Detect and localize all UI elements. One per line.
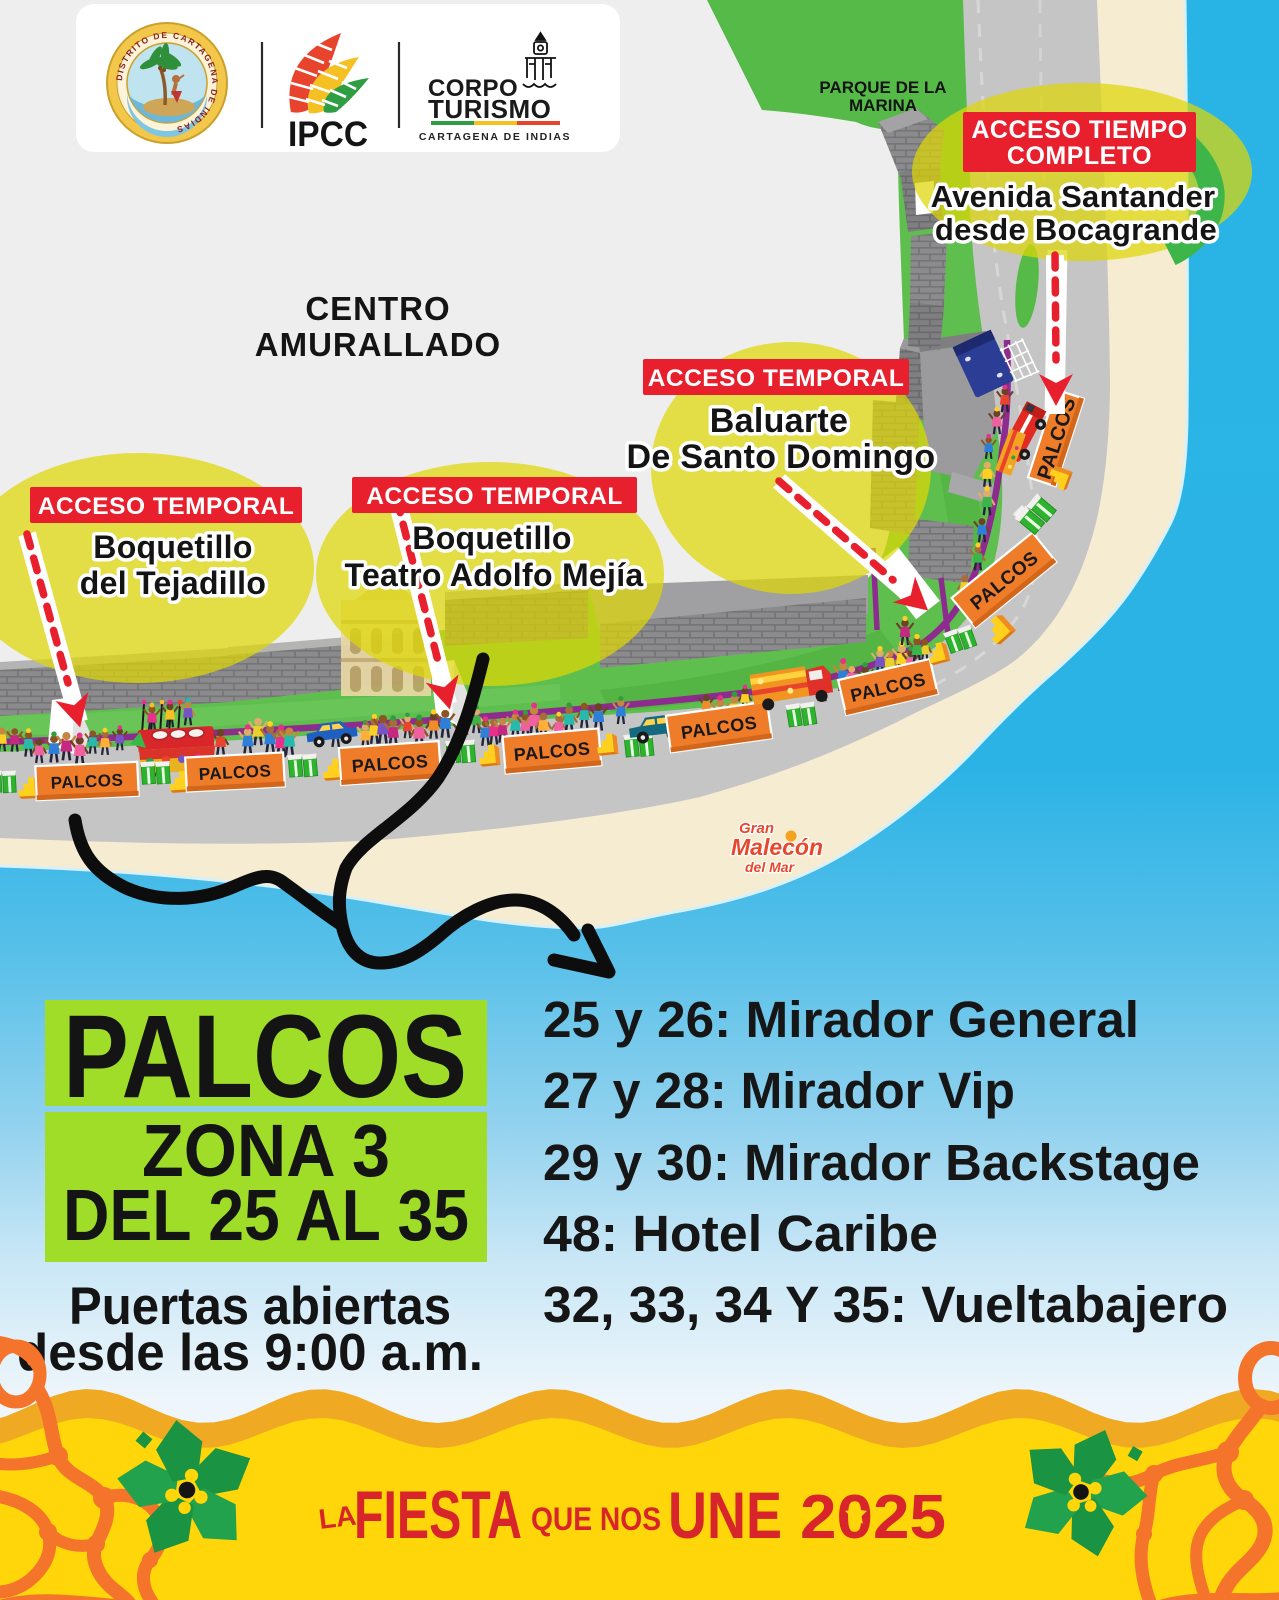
- svg-text:2025: 2025: [800, 1483, 946, 1552]
- svg-text:Boquetillo: Boquetillo: [93, 529, 252, 565]
- svg-text:CARTAGENA DE INDIAS: CARTAGENA DE INDIAS: [419, 131, 571, 143]
- svg-text:desde las 9:00 a.m.: desde las 9:00 a.m.: [17, 1324, 483, 1382]
- svg-text:QUE NOS: QUE NOS: [531, 1501, 661, 1537]
- svg-text:Malecón: Malecón: [731, 834, 823, 860]
- svg-text:PALCOS: PALCOS: [50, 771, 123, 793]
- svg-text:48: Hotel Caribe: 48: Hotel Caribe: [543, 1205, 938, 1262]
- svg-text:Boquetillo: Boquetillo: [412, 520, 571, 556]
- svg-text:ACCESO TEMPORAL: ACCESO TEMPORAL: [648, 365, 905, 392]
- svg-text:De Santo Domingo: De Santo Domingo: [627, 438, 936, 476]
- svg-text:25 y 26: Mirador General: 25 y 26: Mirador General: [543, 991, 1139, 1048]
- svg-text:COMPLETO: COMPLETO: [1007, 142, 1152, 170]
- svg-text:del Mar: del Mar: [745, 859, 796, 875]
- svg-text:ACCESO TEMPORAL: ACCESO TEMPORAL: [366, 483, 623, 510]
- svg-text:CENTRO: CENTRO: [305, 290, 450, 327]
- svg-text:32, 33, 34 Y 35: Vueltabajero: 32, 33, 34 Y 35: Vueltabajero: [543, 1276, 1228, 1333]
- svg-text:MARINA: MARINA: [849, 96, 917, 115]
- svg-text:PARQUE DE LA: PARQUE DE LA: [819, 78, 946, 97]
- svg-text:del Tejadillo: del Tejadillo: [80, 565, 266, 601]
- svg-text:FIESTA: FIESTA: [354, 1477, 522, 1553]
- svg-text:LA: LA: [317, 1500, 358, 1535]
- svg-text:Teatro Adolfo Mejía: Teatro Adolfo Mejía: [344, 557, 643, 593]
- svg-text:29 y 30: Mirador Backstage: 29 y 30: Mirador Backstage: [543, 1134, 1200, 1191]
- svg-text:Avenida Santander: Avenida Santander: [931, 179, 1216, 214]
- svg-text:DEL 25 AL 35: DEL 25 AL 35: [63, 1176, 469, 1256]
- svg-text:27 y 28: Mirador Vip: 27 y 28: Mirador Vip: [543, 1062, 1015, 1119]
- svg-text:PALCOS: PALCOS: [198, 761, 271, 784]
- svg-text:desde Bocagrande: desde Bocagrande: [935, 212, 1217, 247]
- svg-text:ACCESO TIEMPO: ACCESO TIEMPO: [971, 116, 1187, 144]
- svg-text:TURISMO: TURISMO: [428, 94, 551, 124]
- svg-text:AMURALLADO: AMURALLADO: [255, 326, 501, 363]
- svg-text:UNE: UNE: [668, 1478, 782, 1552]
- svg-text:ACCESO TEMPORAL: ACCESO TEMPORAL: [38, 493, 295, 520]
- svg-text:Baluarte: Baluarte: [710, 402, 848, 440]
- svg-text:PALCOS: PALCOS: [63, 991, 467, 1123]
- svg-text:IPCC: IPCC: [288, 115, 368, 154]
